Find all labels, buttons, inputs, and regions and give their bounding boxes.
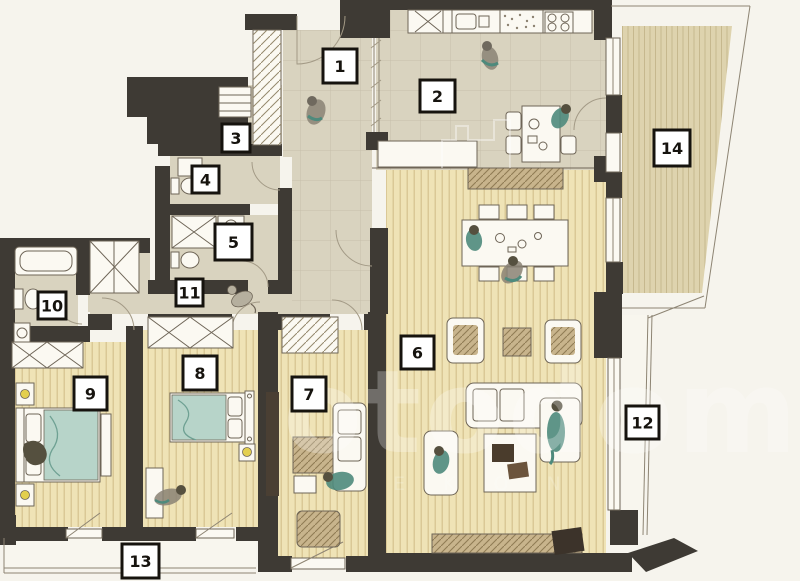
kitchen-sink (456, 14, 476, 29)
floor-plan-page: otodom E K O N 1234567891011121314 (0, 0, 800, 581)
lamp (243, 448, 252, 457)
chair (534, 205, 554, 219)
bathroom10-sink (14, 323, 30, 343)
floor-plan-image: otodom E K O N 1234567891011121314 (0, 0, 800, 581)
svg-text:8: 8 (194, 364, 205, 383)
svg-text:3: 3 (230, 129, 241, 148)
room-label-2: 2 (420, 80, 455, 112)
toilet-tank (171, 252, 179, 268)
headboard (245, 391, 254, 444)
room-label-14: 14 (654, 130, 690, 166)
chair (507, 205, 527, 219)
svg-text:5: 5 (228, 233, 239, 252)
svg-text:6: 6 (412, 344, 423, 363)
armchair (297, 511, 340, 547)
chair (534, 267, 554, 281)
toilet-tank (171, 178, 179, 194)
lamp (21, 390, 30, 399)
tv (551, 527, 584, 555)
media-unit (266, 392, 279, 496)
closet (148, 317, 233, 348)
chair (561, 136, 576, 154)
svg-text:9: 9 (85, 385, 96, 404)
room-label-5: 5 (215, 224, 252, 260)
sideboard (468, 168, 563, 189)
svg-text:4: 4 (200, 171, 211, 190)
room-label-8: 8 (183, 356, 217, 390)
svg-text:12: 12 (631, 414, 653, 433)
svg-text:7: 7 (303, 385, 314, 404)
chair (506, 136, 521, 154)
pillow (26, 414, 41, 442)
toilet-bowl (181, 252, 199, 268)
watermark-text: otodom (283, 346, 800, 480)
room-label-12: 12 (626, 406, 659, 439)
svg-text:1: 1 (334, 57, 345, 76)
svg-text:11: 11 (178, 284, 200, 303)
chair (479, 267, 499, 281)
watermark-subtext: E K O N (393, 473, 577, 495)
room-label-9: 9 (74, 377, 107, 410)
shelf-unit (219, 87, 251, 117)
chair (479, 205, 499, 219)
toilet-tank (14, 289, 23, 309)
headboard (16, 408, 24, 482)
pillow (228, 419, 242, 438)
kitchen-peninsula (378, 141, 477, 167)
room-label-7: 7 (292, 377, 326, 411)
room-label-11: 11 (176, 279, 203, 306)
room-label-10: 10 (38, 292, 66, 319)
room-label-6: 6 (401, 336, 434, 369)
svg-text:13: 13 (129, 552, 151, 571)
hall-wardrobe (90, 241, 139, 293)
room-label-4: 4 (192, 166, 219, 193)
lamp (21, 491, 30, 500)
pillow (228, 397, 242, 416)
closet (12, 342, 83, 368)
svg-text:2: 2 (432, 87, 443, 106)
room-label-3: 3 (222, 124, 250, 152)
bench (101, 414, 111, 476)
blanket (44, 410, 98, 480)
room-label-1: 1 (323, 49, 357, 83)
svg-text:10: 10 (41, 297, 63, 316)
dining-window (606, 133, 620, 172)
room-label-13: 13 (122, 544, 159, 578)
svg-text:14: 14 (661, 139, 683, 158)
